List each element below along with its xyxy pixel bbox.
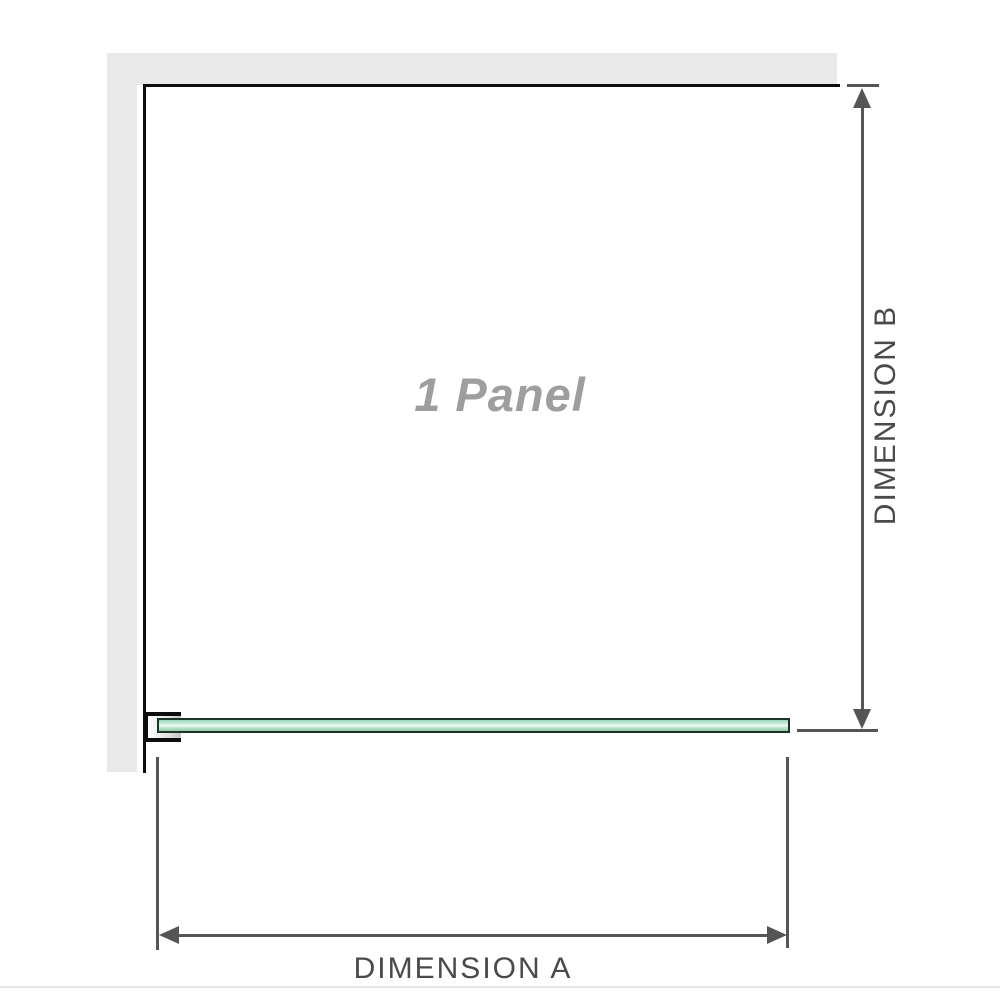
- panel-dimension-diagram: 1 Panel DIMENSION B DIMENSION A: [0, 0, 1000, 1000]
- panel-top-edge: [143, 84, 840, 87]
- wall-top-strip: [107, 53, 837, 85]
- arrow-right-icon: [767, 926, 787, 944]
- dimension-a-right-extension: [786, 757, 789, 948]
- panel-label: 1 Panel: [300, 368, 700, 422]
- arrow-down-icon: [853, 709, 871, 729]
- arrow-left-icon: [159, 926, 179, 944]
- dimension-b-label: DIMENSION B: [870, 275, 902, 555]
- glass-panel-bar: [157, 718, 790, 733]
- bottom-edge-line: [0, 986, 1000, 988]
- arrow-up-icon: [853, 88, 871, 108]
- dimension-a-label: DIMENSION A: [263, 951, 663, 987]
- dimension-b-top-tick: [847, 84, 879, 87]
- dimension-b-line: [861, 103, 864, 713]
- panel-left-edge: [143, 84, 146, 773]
- dimension-a-left-extension: [156, 757, 159, 950]
- dimension-b-bottom-tick: [797, 729, 878, 732]
- dimension-a-line: [176, 934, 770, 937]
- wall-left-strip: [107, 53, 137, 772]
